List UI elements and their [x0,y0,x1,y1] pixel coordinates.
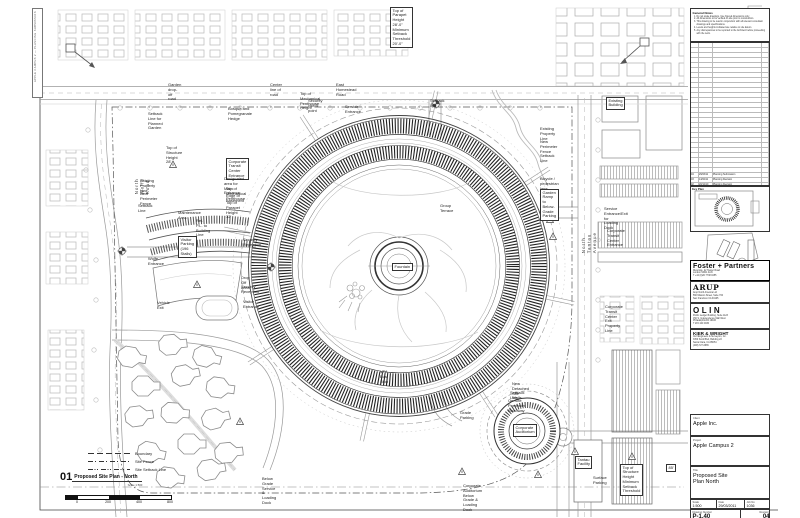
plan-title-text: Proposed Site Plan - North [72,472,141,482]
edge-title-strip: APPLE CAMPUS 2 — PLANNING SUBMISSION [32,8,43,98]
annotation-label: North Tantau Avenue [581,232,597,253]
annotation-label: Security Reception [243,238,261,248]
date-cell: Date 29/03/2011 [717,500,745,508]
annotation-label: Service Entrance [345,105,361,115]
project-field: Project Apple Campus 2 [690,436,770,466]
consultant-name: ARUP [693,283,767,292]
annotation-label: Corporate Transit Center Entrance [607,229,625,248]
annotation-label: Setback Line [138,204,152,214]
job-cell: Job No 1036 [745,500,771,508]
client-label: Client [693,417,767,420]
legend-item: Boundary [88,449,166,457]
legend-line-sample [88,469,130,470]
client-name: Apple Inc. [693,421,767,427]
annotation-label: Setback line [430,99,444,109]
scale-bar: 0200400800 [65,495,172,500]
annotation-label: Fountain [392,263,413,271]
legend: BoundarySite FenceSite Setback Line [88,449,166,473]
annotation-label: Setback Line for Planned Garden [148,112,163,131]
title-block: General Notes Do not scale drawings. Use… [690,8,770,512]
annotation-label: VTA Bus Stop [380,370,388,384]
annotation-label: 85' [666,464,676,472]
consultant-blocks: Foster + PartnersRiverside, 22 Hester Ro… [690,260,770,350]
revision-table: 0429/03/11Planning Submission0314/02/11P… [690,42,770,186]
general-note-item: Any discrepancies to be reported to the … [697,30,768,36]
annotation-label: Below Grade Service & Loading Dock [262,477,276,506]
legend-line-sample [88,453,130,454]
legend-line-sample [88,461,130,462]
client-field: Client Apple Inc. [690,414,770,436]
consultant-name: Foster + Partners [693,263,767,270]
annotation-label: Corporate Auditorium [513,424,537,437]
annotation-label: Security Reception [241,285,259,295]
legend-item-label: Site Setback Line [135,467,166,472]
scale-bar-label: 400 [136,500,142,504]
annotation-label: Tantau Facility [575,456,592,469]
legend-item-label: Boundary [135,451,152,456]
annotation-label: Garden drop-off road [168,83,181,102]
consultant-block-olin: OLINPublic Ledger Building, Suite 112315… [690,303,770,328]
plan-number: 01 [60,472,72,483]
annotation-label: Visitor Entrance [243,300,259,310]
site-plan-drawing [0,0,800,518]
key-plan-map [691,187,769,230]
annotation-label: Existing Building [606,97,625,110]
drawing-sheet: APPLE CAMPUS 2 — PLANNING SUBMISSION Top… [0,0,800,518]
consultant-name: OLIN [693,306,767,315]
scale-bar-label: 800 [167,500,173,504]
consultant-address-line: T +44 (0)20 7738 0455 [693,275,767,278]
revision-cell: Revision 04 [741,510,771,518]
orchard [339,282,365,312]
annotation-label: Top of Structure Height Minimum Setback … [620,464,643,496]
annotation-label: Rel. P.L. to Building Line [196,219,210,238]
general-notes-title: General Notes [693,11,768,15]
consultant-address-line: San Francisco CA 94105 [693,298,767,301]
scale-bar-segments [65,495,172,500]
consultant-address-line: T 215 440 0030 [693,323,767,326]
scale-date-job-row: Scale 1:500 Date 29/03/2011 Job No 1036 [690,499,770,509]
annotation-label: Top of Structure Height 28' [166,146,182,165]
drawing-title: Proposed Site Plan North [693,473,735,487]
annotation-label: Vehicle Exit [157,301,170,311]
annotation-label: Group Terrace [440,204,453,214]
annotation-label: Top of Parapet Height 28'-0" Minimum Set… [390,7,413,48]
plan-title: 01 Proposed Site Plan - North Scale 1:50… [60,472,142,487]
scale-bar-label: 200 [105,500,111,504]
annotation-label: East Homestead Road [336,83,356,97]
scale-bar-label: 0 [76,500,78,504]
key-plan: Key Plan [690,186,770,232]
annotation-label: Surface Parking [593,476,607,486]
legend-item-label: Site Fence [135,459,154,464]
key-plan-label: Key Plan [692,187,704,191]
annotation-label: Center line of road [270,83,282,97]
consultant-block-arup: ARUPArup North America Ltd560 Mission St… [690,281,770,304]
project-label: Project [693,439,767,442]
drawing-title-field: Title Proposed Site Plan North [690,466,770,499]
legend-item: Site Fence [88,457,166,465]
consultant-address-line: (408) 727-6665 [693,345,767,348]
drawing-number-cell: Drawing Number P-1.40 [691,510,741,518]
annotation-label: Setback Line [540,154,554,164]
annotation-label: Visitor Parking (196 Stalls) [178,236,197,258]
annotation-label: Garden Ramp to Below-Grade Parking [540,189,559,221]
annotation-label: North Wolfe Road [134,178,150,194]
project-name: Apple Campus 2 [693,443,767,449]
annotation-label: Top of Parapet Height 32' [226,201,240,220]
annotation-label: Corporate Auditorium Below Grade & Loadi… [463,484,482,513]
annotation-label: Wolfe Entrance [148,257,164,267]
annotation-label: Corporate Transit Center Exit Property L… [605,305,623,334]
drawing-number-row: Drawing Number P-1.40 Revision 04 [690,509,770,518]
annotation-label: Grade Parking [460,411,474,421]
plan-scale-note: Scale 1:500 [128,483,143,487]
general-notes: General Notes Do not scale drawings. Use… [690,8,770,42]
consultant-block-kier: KIER & WRIGHTCivil Engineers & Surveyors… [690,329,770,350]
scale-cell: Scale 1:500 [691,500,717,508]
edge-strip-text: APPLE CAMPUS 2 — PLANNING SUBMISSION [33,9,38,84]
annotation-label: On-Site Perimeter Roadway [508,399,525,413]
drawing-title-label: Title [693,469,767,472]
consultant-block-foster: Foster + PartnersRiverside, 22 Hester Ro… [690,260,770,281]
annotation-label: Bosque and Pomegranate Hedge [228,107,252,121]
annotation-label: Security check point [308,99,322,113]
